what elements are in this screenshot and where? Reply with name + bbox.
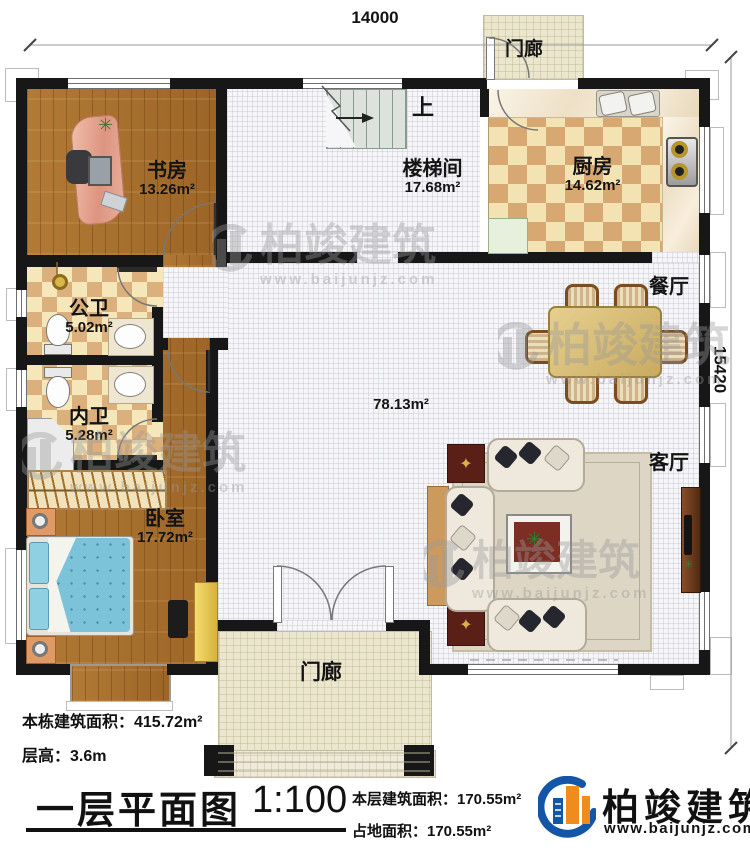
room-area: 5.28m² — [53, 428, 125, 445]
room-name: 楼梯间 — [375, 158, 490, 180]
window — [699, 127, 710, 213]
dining-chair — [658, 330, 688, 364]
stairs-up-label: 上 — [408, 96, 438, 121]
bedroom-label: 卧室 17.72m² — [119, 508, 211, 547]
front-porch-label: 门廊 — [290, 661, 352, 685]
note-footprint-area: 占地面积：170.55m² — [352, 820, 491, 841]
wall — [402, 78, 487, 89]
wall — [218, 620, 277, 631]
door-leaf — [117, 455, 157, 460]
note-floor-area: 本层建筑面积：170.55m² — [352, 788, 521, 809]
stove-burner-icon — [671, 141, 688, 158]
bedroom-tv — [168, 600, 188, 638]
front-door-gap-floor — [277, 620, 386, 631]
wall — [170, 78, 303, 89]
vestibule-floor — [163, 267, 228, 338]
dining-table — [548, 306, 662, 378]
front-porch-steps — [214, 750, 436, 778]
toilet — [46, 376, 70, 408]
rear-porch-label: 门廊 — [494, 39, 554, 60]
door-leaf — [273, 566, 282, 623]
room-name: 卧室 — [119, 508, 211, 530]
door-leaf — [385, 566, 394, 623]
bed-pillow — [29, 588, 49, 630]
window — [699, 592, 710, 650]
window — [699, 407, 710, 463]
window-sill — [710, 403, 726, 467]
porch-column — [204, 745, 234, 776]
room-area: 14.62m² — [545, 178, 640, 195]
brand-logo-icon — [538, 776, 596, 840]
wall — [16, 255, 163, 267]
opening-floor — [357, 252, 398, 263]
ornament-icon: ✦ — [459, 454, 472, 474]
plan-scale: 1:100 — [252, 779, 347, 822]
plan-title: 一层平面图 — [36, 779, 241, 834]
dimension-height-label: 15420 — [710, 339, 729, 401]
living-label: 客厅 — [644, 452, 694, 474]
window — [303, 78, 402, 89]
wall — [16, 355, 163, 365]
dining-label: 餐厅 — [644, 276, 694, 298]
floor-plan-canvas: 14000 15420 — [0, 0, 750, 849]
plant-icon: ✳ — [684, 560, 693, 571]
room-area: 17.72m² — [119, 530, 211, 547]
window-sill — [650, 675, 684, 690]
room-name: 内卫 — [53, 406, 125, 428]
pendant-light-icon — [52, 274, 68, 290]
stove-burner-icon — [671, 163, 688, 180]
public-bath-label: 公卫 5.02m² — [53, 298, 125, 337]
window — [16, 370, 27, 407]
plant-icon: ✳ — [98, 116, 113, 134]
window-sill — [710, 252, 726, 308]
hall-area-label: 78.13m² — [356, 397, 446, 414]
wall — [167, 664, 218, 675]
wall — [699, 78, 710, 127]
wardrobe — [27, 470, 167, 510]
room-name: 书房 — [112, 160, 222, 182]
bed-pillow — [29, 542, 49, 584]
bedroom-tv-cabinet — [194, 582, 218, 662]
living-tv — [684, 515, 692, 555]
ornament-icon: ✦ — [459, 615, 472, 635]
room-area: 13.26m² — [112, 182, 222, 199]
study-door-gap-floor — [163, 255, 216, 267]
stairwell-label: 楼梯间 17.68m² — [375, 158, 490, 197]
window — [699, 255, 710, 303]
lamp-icon — [32, 513, 48, 529]
window — [68, 78, 170, 89]
window-sill — [710, 637, 732, 675]
wall — [430, 664, 468, 675]
kitchen-cabinet — [488, 218, 528, 254]
bath-door-gap — [152, 267, 163, 307]
opening-floor — [652, 252, 699, 263]
bay-window-floor — [70, 664, 171, 704]
wall — [699, 213, 710, 255]
wall — [480, 89, 489, 117]
front-porch-floor — [218, 631, 432, 752]
brand-url: www.baijunjz.com — [604, 820, 750, 837]
room-area: 17.68m² — [375, 180, 490, 197]
title-underline — [26, 828, 346, 832]
door-leaf — [117, 267, 157, 272]
wall — [699, 303, 710, 407]
monitor — [88, 156, 112, 186]
dimension-width-label: 14000 — [340, 8, 410, 27]
wall — [16, 664, 70, 675]
plant-icon: ✳ — [526, 530, 543, 550]
room-name: 厨房 — [545, 156, 640, 178]
note-building-area: 本栋建筑面积：415.72m² — [22, 708, 203, 732]
study-label: 书房 13.26m² — [112, 160, 222, 199]
porch-column — [404, 745, 434, 776]
kitchen-label: 厨房 14.62m² — [545, 156, 640, 195]
end-table: ✦ — [447, 444, 485, 483]
sink-basin — [114, 372, 146, 397]
private-bath-label: 内卫 5.28m² — [53, 406, 125, 445]
wall — [618, 664, 710, 675]
kitchen-counter — [488, 89, 699, 118]
wall — [578, 78, 710, 89]
room-name: 公卫 — [53, 298, 125, 320]
wall — [163, 338, 168, 350]
window — [16, 290, 27, 317]
wall — [419, 631, 430, 675]
window — [468, 664, 618, 675]
room-area: 5.02m² — [53, 320, 125, 337]
window-sill — [710, 127, 724, 215]
wall — [227, 252, 357, 263]
wall — [210, 338, 228, 350]
lamp-icon — [32, 641, 48, 657]
note-floor-height: 层高：3.6m — [22, 742, 106, 766]
